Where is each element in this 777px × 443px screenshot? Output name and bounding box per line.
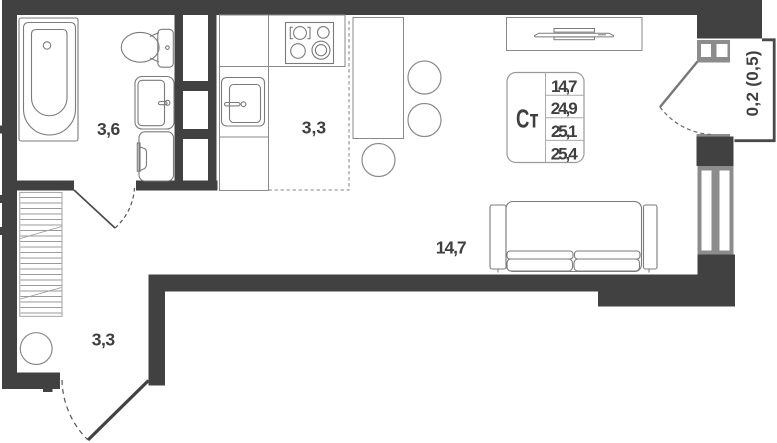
svg-text:3,3: 3,3 — [92, 330, 116, 350]
svg-text:25,4: 25,4 — [551, 145, 579, 164]
svg-text:25,1: 25,1 — [551, 122, 578, 141]
svg-text:0,2 (0,5): 0,2 (0,5) — [743, 50, 762, 116]
svg-text:24,9: 24,9 — [551, 99, 578, 118]
svg-text:Ст: Ст — [516, 104, 539, 134]
svg-text:14,7: 14,7 — [551, 77, 578, 96]
svg-text:14,7: 14,7 — [436, 238, 467, 258]
svg-text:3,3: 3,3 — [302, 118, 327, 138]
svg-text:3,6: 3,6 — [97, 119, 121, 139]
